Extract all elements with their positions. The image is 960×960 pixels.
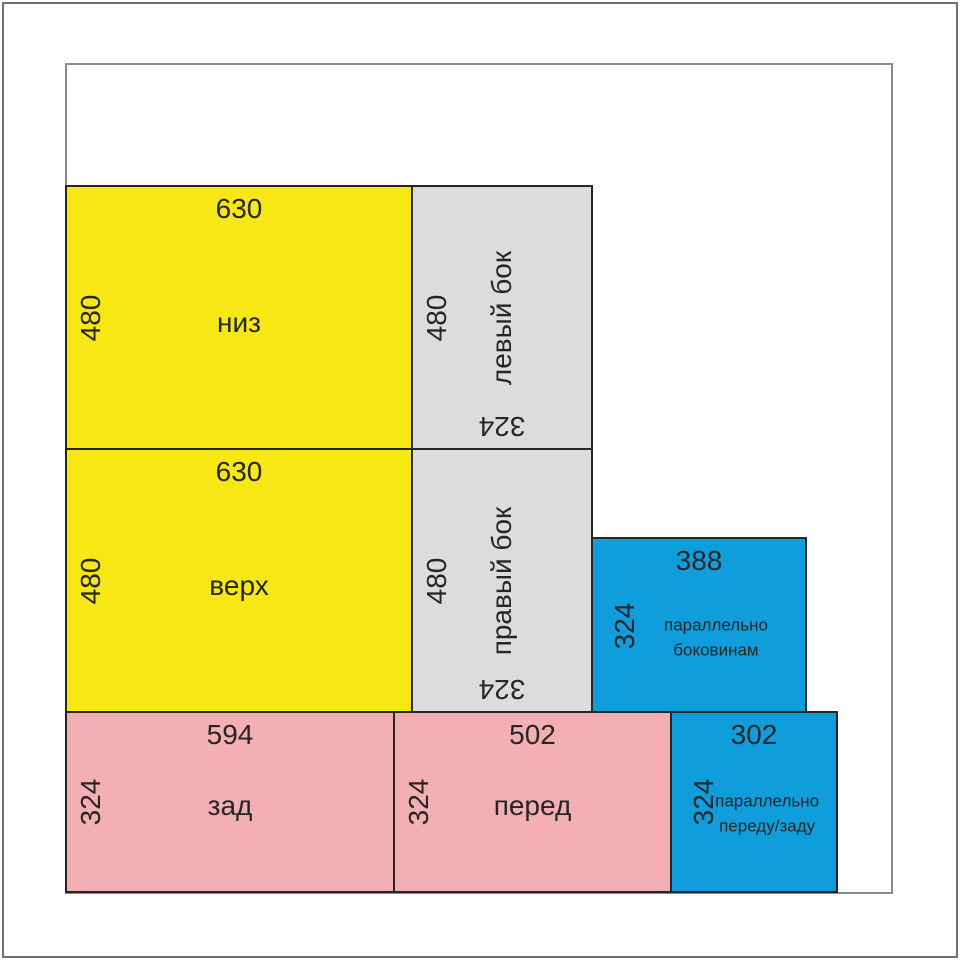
cutting-layout-diagram: 630 480 низ 480 левый бок 324 630 480 ве… — [0, 0, 960, 960]
panel-parallel-peredu-zadu: 302 324 параллельно переду/заду — [670, 711, 838, 893]
height-dim-label: 324 — [609, 603, 641, 650]
panel-name-label: низ — [217, 307, 261, 339]
height-dim-label: 324 — [75, 779, 107, 826]
width-dim-label: 502 — [395, 719, 670, 751]
panel-name-label: левый бок — [486, 250, 518, 384]
panel-name-label: верх — [209, 570, 268, 602]
width-dim-label: 302 — [672, 719, 836, 751]
panel-name-label: перед — [494, 790, 572, 822]
height-dim-label: 480 — [421, 557, 453, 604]
width-dim-label: 388 — [593, 545, 805, 577]
panel-name-label: зад — [208, 790, 253, 822]
panel-zad: 594 324 зад — [65, 711, 395, 893]
panel-name-label: правый бок — [486, 506, 518, 655]
panel-pravyi-bok: 480 правый бок 324 — [411, 448, 593, 713]
panel-verh: 630 480 верх — [65, 448, 413, 713]
panel-parallel-bokovinam: 388 324 параллельно боковинам — [591, 537, 807, 715]
height-dim-label: 480 — [75, 557, 107, 604]
height-dim-label: 480 — [75, 294, 107, 341]
panel-niz: 630 480 низ — [65, 185, 413, 450]
panel-name-label: параллельно переду/заду — [715, 790, 819, 839]
panel-levyi-bok: 480 левый бок 324 — [411, 185, 593, 450]
width-dim-label: 630 — [67, 456, 411, 488]
width-dim-label: 324 — [413, 673, 591, 705]
width-dim-label: 594 — [67, 719, 393, 751]
width-dim-label: 324 — [413, 410, 591, 442]
width-dim-label: 630 — [67, 193, 411, 225]
panel-pered: 502 324 перед — [393, 711, 672, 893]
height-dim-label: 324 — [403, 779, 435, 826]
panel-name-label: параллельно боковинам — [664, 614, 768, 663]
height-dim-label: 480 — [421, 294, 453, 341]
